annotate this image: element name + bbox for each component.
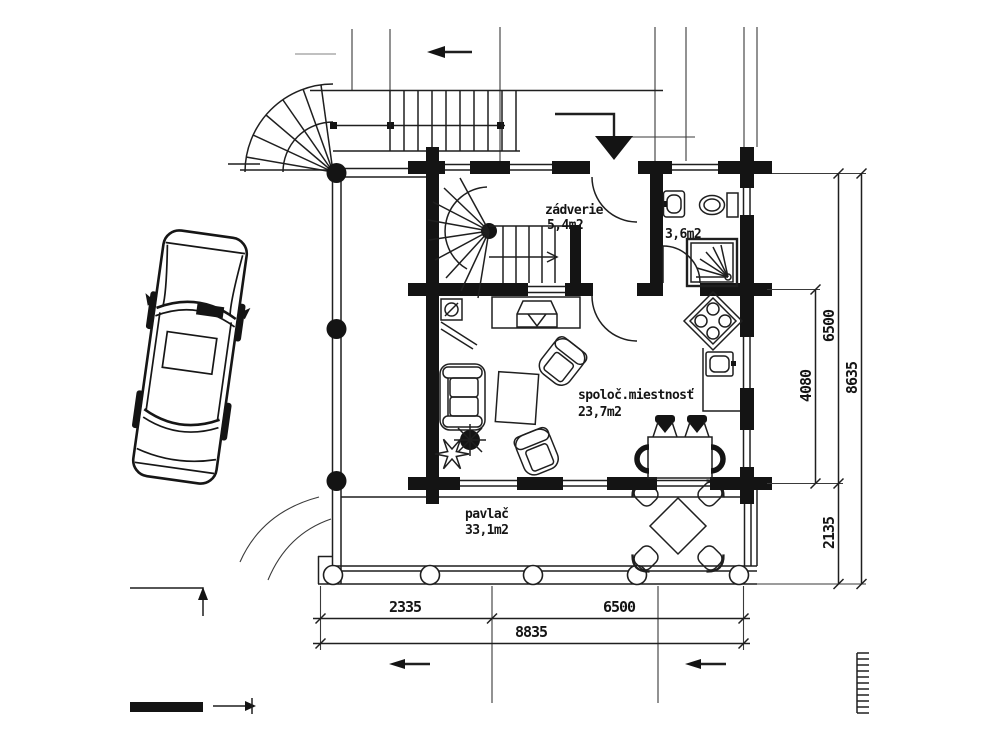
coffee-table <box>495 372 538 425</box>
entry-room-area: 5,4m2 <box>547 218 583 233</box>
stove-tv-cabinet <box>492 297 580 328</box>
dining-chair <box>637 447 649 471</box>
car-wheel <box>234 303 246 342</box>
porch-column <box>324 566 343 585</box>
dim-right-total: 8635 <box>843 361 861 394</box>
exterior-stair-treads <box>390 91 516 152</box>
room-labels: zádverie 5,4m2 3,6m2 spoloč.miestnosť 23… <box>465 203 701 538</box>
left-arrow-bottom-1 <box>389 659 430 669</box>
bathroom-door-arc <box>663 246 700 283</box>
sofa <box>440 364 485 430</box>
porch-table-set <box>628 476 728 576</box>
dining-chair <box>653 415 677 437</box>
scale-bar <box>130 702 203 712</box>
porch-column <box>421 566 440 585</box>
bathroom-sink <box>664 191 685 217</box>
potted-plant <box>435 424 486 469</box>
porch-column <box>730 566 749 585</box>
dim-right-porch: 2135 <box>820 516 838 549</box>
left-arrow-top <box>427 46 472 58</box>
dim-bottom-right: 6500 <box>603 598 636 616</box>
dining-chair <box>711 447 723 471</box>
porch-post <box>327 163 347 183</box>
porch-area: 33,1m2 <box>465 523 508 538</box>
porch-post <box>327 471 347 491</box>
kitchen-sink <box>706 352 736 376</box>
dim-right-house: 6500 <box>820 309 838 342</box>
floor-plan-page: zádverie 5,4m2 3,6m2 spoloč.miestnosť 23… <box>0 0 1000 743</box>
graphic-scale-ladder <box>857 653 869 713</box>
car <box>120 227 259 487</box>
bathroom-area: 3,6m2 <box>665 227 701 242</box>
interior-staircase <box>428 178 570 298</box>
dining-chair <box>685 415 709 437</box>
kitchen-counter <box>703 348 740 411</box>
porch-post <box>327 319 347 339</box>
car-wheel <box>220 402 232 441</box>
porch-column <box>524 566 543 585</box>
floor-drain-symbol <box>441 299 462 320</box>
stove <box>684 292 742 350</box>
floor-plan-drawing: zádverie 5,4m2 3,6m2 spoloč.miestnosť 23… <box>0 0 1000 743</box>
dim-bottom-left: 2335 <box>389 598 422 616</box>
porch-label: pavlač <box>465 507 508 522</box>
stair-direction-arrow <box>489 252 557 262</box>
site-lines <box>130 27 869 714</box>
living-room-area: 23,7m2 <box>578 405 621 420</box>
dim-right-living: 4080 <box>797 369 815 402</box>
living-door-arc <box>592 296 637 341</box>
car-wheel <box>132 390 144 429</box>
armchair <box>512 426 561 478</box>
dining-table-set <box>637 415 723 478</box>
armchair <box>535 334 589 389</box>
toilet <box>700 193 739 217</box>
entrance-arrow <box>555 114 633 160</box>
living-room-label: spoloč.miestnosť <box>578 388 694 403</box>
exterior-staircase <box>228 84 663 172</box>
dimension-lines: 2335 6500 8835 4080 6500 2135 8635 <box>313 169 867 704</box>
entry-room-label: zádverie <box>545 203 604 218</box>
left-arrow-bottom-2 <box>685 659 726 669</box>
corner-shelf <box>441 322 477 349</box>
dim-bottom-total: 8835 <box>515 623 548 641</box>
stair-side-wall <box>570 225 581 296</box>
